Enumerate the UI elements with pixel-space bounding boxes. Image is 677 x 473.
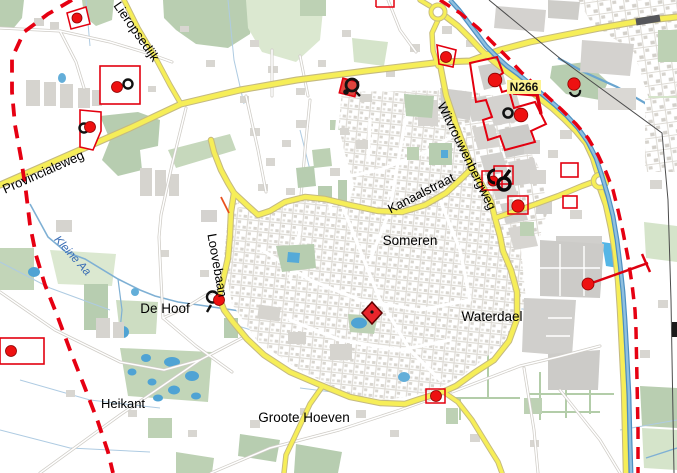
svg-text:Someren: Someren <box>383 233 438 248</box>
svg-text:Waterdael: Waterdael <box>461 309 522 324</box>
svg-text:De Hoof: De Hoof <box>140 301 190 316</box>
svg-text:Groote Hoeven: Groote Hoeven <box>258 410 350 425</box>
svg-text:N266: N266 <box>510 80 539 94</box>
svg-text:Heikant: Heikant <box>101 396 145 411</box>
